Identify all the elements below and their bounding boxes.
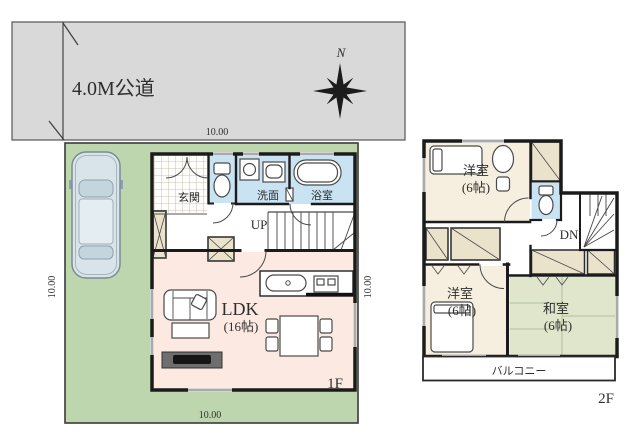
balcony: バルコニー [423,357,615,381]
floor1-plan: 玄関 洗面 浴室 UP LDK (16帖) 1F [150,152,356,392]
japanese-room-size-label: (6帖) [544,318,572,333]
toilet-icon [539,186,553,215]
floor2-plan: バルコニー 洋室 (6帖) DN 洋室 (6帖) 和室 (6帖) 2F [422,139,618,407]
car-windshield [79,180,113,197]
closet [451,228,500,260]
bathtub-icon [294,160,341,185]
stairs-down-label: DN [560,227,579,242]
sofa-icon [164,290,216,320]
closet [532,142,561,181]
bedroom1-size-label: (6帖) [462,180,490,195]
dim-right-label: 10.00 [363,276,374,299]
bedroom2-label: 洋室 [447,286,473,301]
balcony-label: バルコニー [492,365,547,378]
ldk-size-label: (16帖) [224,319,259,334]
japanese-room-label: 和室 [543,301,569,316]
washing-machine-icon [240,159,259,180]
bedroom1-label: 洋室 [463,163,489,178]
floor1-label: 1F [327,376,343,392]
north-label: N [336,45,347,60]
sink-icon [263,162,285,182]
car-icon [69,152,123,278]
dim-bottom-label: 10.00 [199,410,222,421]
coffee-table-icon [172,323,209,338]
tv-board-icon [162,352,222,368]
road-band [12,22,405,140]
road-area: 4.0M公道 [12,22,405,140]
road-label: 4.0M公道 [72,77,155,100]
closet [588,250,615,274]
closet [532,250,585,274]
toilet-icon [214,163,230,197]
car-roof [79,199,113,244]
dim-top-label: 10.00 [206,127,229,138]
kitchen-counter-icon [260,271,353,296]
ldk-label: LDK [222,299,259,319]
entrance-label: 玄関 [178,190,200,204]
floor-plan-page: 4.0M公道 N 10.00 10.00 10.00 10.00 [0,0,638,441]
floor-plan: 4.0M公道 N 10.00 10.00 10.00 10.00 [0,0,638,441]
car-rear-window [79,246,113,259]
closet [426,228,448,260]
stairs-up-label: UP [251,217,268,232]
entrance-tile [153,156,207,213]
floor2-label: 2F [598,391,614,407]
bath-door-icon [286,188,293,201]
dim-left-label: 10.00 [47,276,58,299]
bedroom2-size-label: (6帖) [448,303,476,318]
bathroom-label: 浴室 [311,188,333,202]
washroom-label: 洗面 [257,189,279,202]
